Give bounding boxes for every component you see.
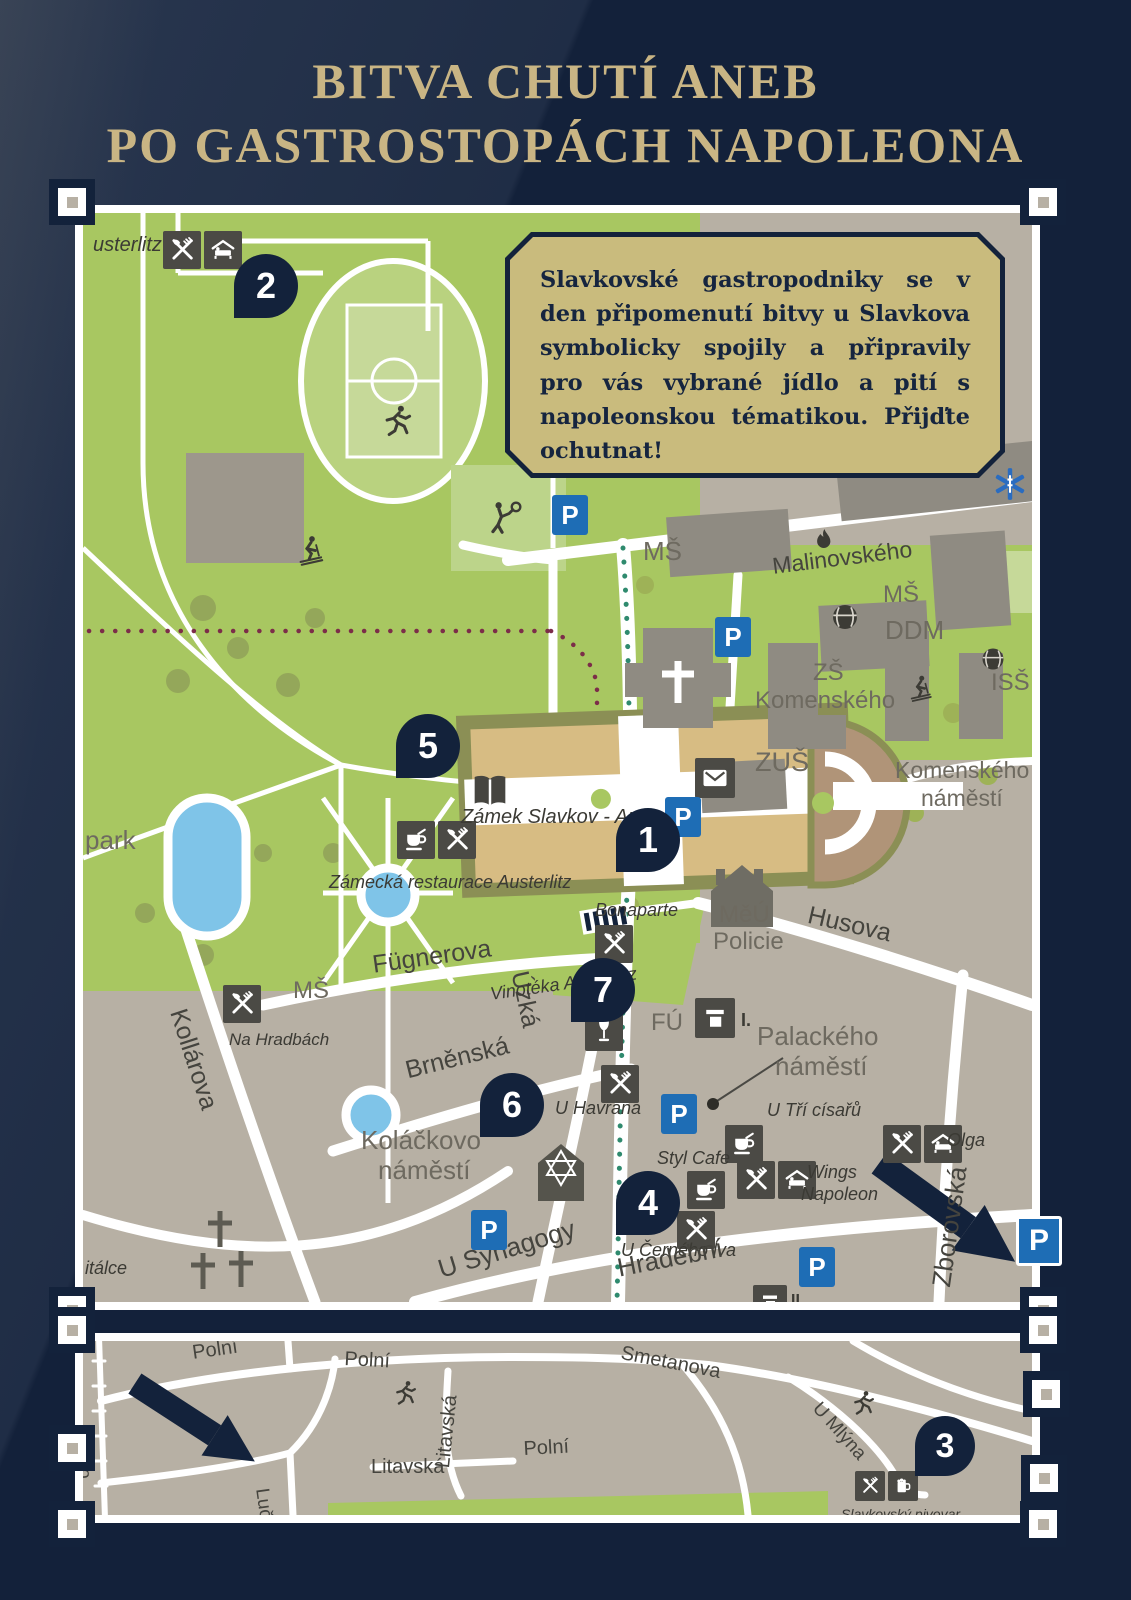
- poi-icon-group: [163, 231, 242, 269]
- street-label: Husova: [805, 903, 893, 946]
- map-corner-ornament: [1030, 1464, 1058, 1492]
- street-label: riá: [847, 205, 866, 210]
- strip-map-objects: PolníPolníSmetanovaLitavskáPolníLitavská…: [83, 1341, 1032, 1515]
- medical-star-icon: [991, 465, 1029, 503]
- area-label: Komenského: [755, 689, 895, 713]
- info-box-text: Slavkovské gastropodniky se v den připom…: [540, 263, 970, 468]
- poi-icon-group: [855, 1471, 918, 1501]
- area-label: Policie: [713, 930, 784, 954]
- street-label: Polní: [191, 1337, 239, 1363]
- area-label: FÚ: [651, 1011, 683, 1035]
- map-marker-6: 6: [480, 1073, 544, 1137]
- info-terminal-icon: [753, 1285, 787, 1310]
- map-corner-ornament: [58, 1316, 86, 1344]
- area-label: náměstí: [775, 1053, 868, 1079]
- poi-icon-group: [223, 985, 261, 1023]
- area-label: MŠ: [883, 583, 919, 607]
- poi-label: Bonaparte: [595, 901, 678, 919]
- poi-icon-group: [753, 1285, 787, 1310]
- tennis-player-icon: [485, 499, 523, 537]
- poi-label: U Tří císařů: [767, 1101, 861, 1119]
- map-corner-ornament: [58, 1434, 86, 1462]
- area-label: DDM: [885, 617, 944, 643]
- runner-icon: [379, 403, 415, 439]
- map-marker-2: 2: [234, 254, 298, 318]
- poi-label: Na Hradbách: [229, 1031, 329, 1048]
- parking-icon: P: [799, 1247, 835, 1287]
- cafe-icon: [397, 821, 435, 859]
- skier-icon: [293, 533, 327, 567]
- map-marker-3: 3: [915, 1416, 975, 1476]
- parking-icon: P: [661, 1094, 697, 1134]
- street-label: Kollárova: [165, 1006, 221, 1113]
- mail-icon: [695, 758, 735, 798]
- street-label: Luční: [252, 1487, 277, 1523]
- map-corner-ornament: [58, 188, 86, 216]
- restaurant-icon: [163, 231, 201, 269]
- map-corner-ornament: [1029, 1316, 1057, 1344]
- poster-page: BITVA CHUTÍ ANEB PO GASTROSTOPÁCH NAPOLE…: [0, 0, 1131, 1600]
- poi-label: usterlitz: [93, 235, 162, 255]
- area-label: MŠ: [293, 979, 329, 1003]
- street-label: Polní: [523, 1437, 570, 1459]
- restaurant-icon: [855, 1471, 885, 1501]
- poster-title-line1: BITVA CHUTÍ ANEB: [0, 52, 1131, 110]
- poi-label: Zámecká restaurace Austerlitz: [329, 873, 571, 891]
- info-box: Slavkovské gastropodniky se v den připom…: [505, 232, 1005, 478]
- info-box-inner: Slavkovské gastropodniky se v den připom…: [510, 237, 1000, 473]
- area-label: Komenského: [895, 759, 1029, 782]
- area-label: ZŠ: [813, 661, 844, 685]
- map-corner-ornament: [1029, 1510, 1057, 1538]
- poi-label: U Havrana: [555, 1099, 641, 1117]
- area-label: park: [85, 827, 136, 853]
- beer-mug-icon: [888, 1471, 918, 1501]
- info-point-label: I.: [741, 1011, 751, 1029]
- area-label: MŠ: [643, 538, 682, 564]
- map-marker-1: 1: [616, 808, 680, 872]
- area-label: náměstí: [921, 787, 1003, 810]
- area-label: Palackého: [757, 1023, 878, 1049]
- street-label: Fügnerova: [371, 936, 493, 977]
- map-corner-ornament: [1032, 1380, 1060, 1408]
- map-corner-ornament: [1029, 188, 1057, 216]
- area-label: ISŠ: [991, 671, 1030, 695]
- parking-icon: P: [1016, 1216, 1062, 1266]
- runner-icon: [391, 1379, 419, 1407]
- street-label: Polní: [344, 1349, 391, 1371]
- map-marker-4: 4: [616, 1171, 680, 1235]
- area-label: MěÚ: [719, 903, 770, 927]
- runner-icon: [849, 1389, 877, 1417]
- parking-icon: P: [715, 617, 751, 657]
- poi-label: Wings: [807, 1163, 857, 1181]
- area-label: Koláčkovo: [361, 1127, 481, 1153]
- map-marker-7: 7: [571, 958, 635, 1022]
- parking-icon: P: [552, 495, 588, 535]
- sport-globe-icon: [829, 601, 861, 633]
- poi-icon-group: [687, 1171, 725, 1209]
- cafe-icon: [725, 1125, 763, 1163]
- parking-icon: P: [471, 1210, 507, 1250]
- skier-icon: [905, 673, 935, 703]
- area-label: ZUŠ: [755, 749, 809, 776]
- poster-title-line2: PO GASTROSTOPÁCH NAPOLEONA: [0, 116, 1131, 174]
- map-marker-5: 5: [396, 714, 460, 778]
- poi-icon-group: [695, 758, 735, 798]
- restaurant-icon: [223, 985, 261, 1023]
- hotel-icon: [204, 231, 242, 269]
- street-label: Malinovského: [771, 538, 913, 578]
- poi-icon-group: [725, 1125, 763, 1163]
- info-point-label: II.: [791, 1293, 804, 1309]
- restaurant-icon: [737, 1161, 775, 1199]
- cafe-icon: [687, 1171, 725, 1209]
- poi-label: Slavkovský pivovar: [841, 1507, 960, 1521]
- detail-strip-map: PolníPolníSmetanovaLitavskáPolníLitavská…: [75, 1333, 1040, 1523]
- poi-label: Napoleon: [801, 1185, 878, 1203]
- area-label: náměstí: [378, 1157, 471, 1183]
- street-label: Zborovská: [928, 1165, 971, 1289]
- poi-label: Styl Cafe: [657, 1149, 730, 1167]
- info-terminal-icon: [695, 998, 735, 1038]
- street-label: Brněnská: [403, 1033, 512, 1083]
- restaurant-icon: [883, 1125, 921, 1163]
- street-label: Smetanova: [619, 1343, 722, 1382]
- map-corner-ornament: [58, 1510, 86, 1538]
- street-label: Litavská: [371, 1457, 444, 1477]
- poi-icon-group: [695, 998, 735, 1038]
- poi-label: Olga: [947, 1131, 985, 1149]
- poi-label: itálce: [85, 1259, 127, 1277]
